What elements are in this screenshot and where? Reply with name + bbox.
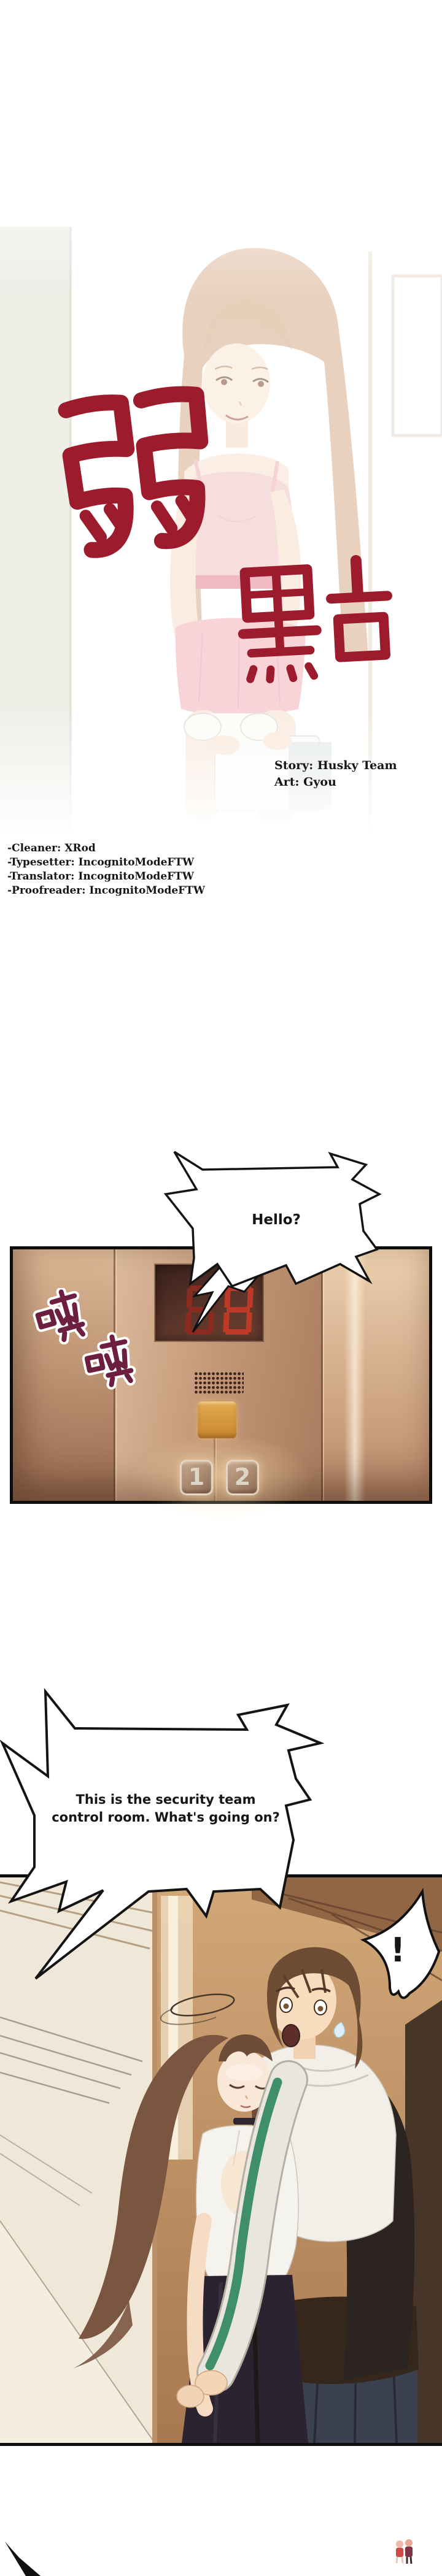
control-room-bubble-text: This is the security team control room. … [25, 1791, 307, 1827]
next-panel-spikes [0, 2515, 74, 2576]
cover-art-panel: 弱 點 [0, 92, 442, 834]
sfx-buzz: 嗤 嗤 [23, 1288, 158, 1405]
woman-hand [177, 2385, 204, 2407]
exclamation-text: ! [386, 1931, 410, 1969]
story-credit: Story: Husky Team [274, 759, 397, 772]
credit-cleaner: -Cleaner: XRod [7, 841, 205, 856]
hello-bubble-text: Hello? [236, 1212, 316, 1228]
art-credit: Art: Gyou [274, 775, 336, 789]
credit-typesetter: -Typesetter: IncognitoModeFTW [7, 856, 205, 870]
watermark-chibi-logo [393, 2538, 416, 2566]
call-button-amber [198, 1401, 236, 1438]
button-glow [130, 1433, 314, 1519]
floor-button-1: 1 [180, 1460, 213, 1495]
hello-bubble [153, 1138, 393, 1340]
control-room-bubble [0, 1656, 344, 1999]
webtoon-page: 弱 點 Story: Husky Team Art: Gyou -Cleaner… [0, 0, 442, 2576]
control-room-bubble-body [2, 1692, 320, 1979]
control-room-line-2: control room. What's going on? [25, 1809, 307, 1827]
credit-proofreader: -Proofreader: IncognitoModeFTW [7, 884, 205, 898]
floor-button-1-label: 1 [188, 1463, 204, 1490]
credit-translator: -Translator: IncognitoModeFTW [7, 870, 205, 884]
man-open-mouth [282, 2025, 300, 2047]
floor-button-2: 2 [226, 1460, 259, 1495]
staff-credits: -Cleaner: XRod -Typesetter: IncognitoMod… [7, 841, 205, 898]
control-room-line-1: This is the security team [25, 1791, 307, 1809]
speaker-grille [193, 1371, 244, 1393]
cover-illustration [0, 92, 442, 834]
floor-button-2-label: 2 [235, 1463, 250, 1490]
sfx-buzz-glyphs [23, 1288, 158, 1405]
